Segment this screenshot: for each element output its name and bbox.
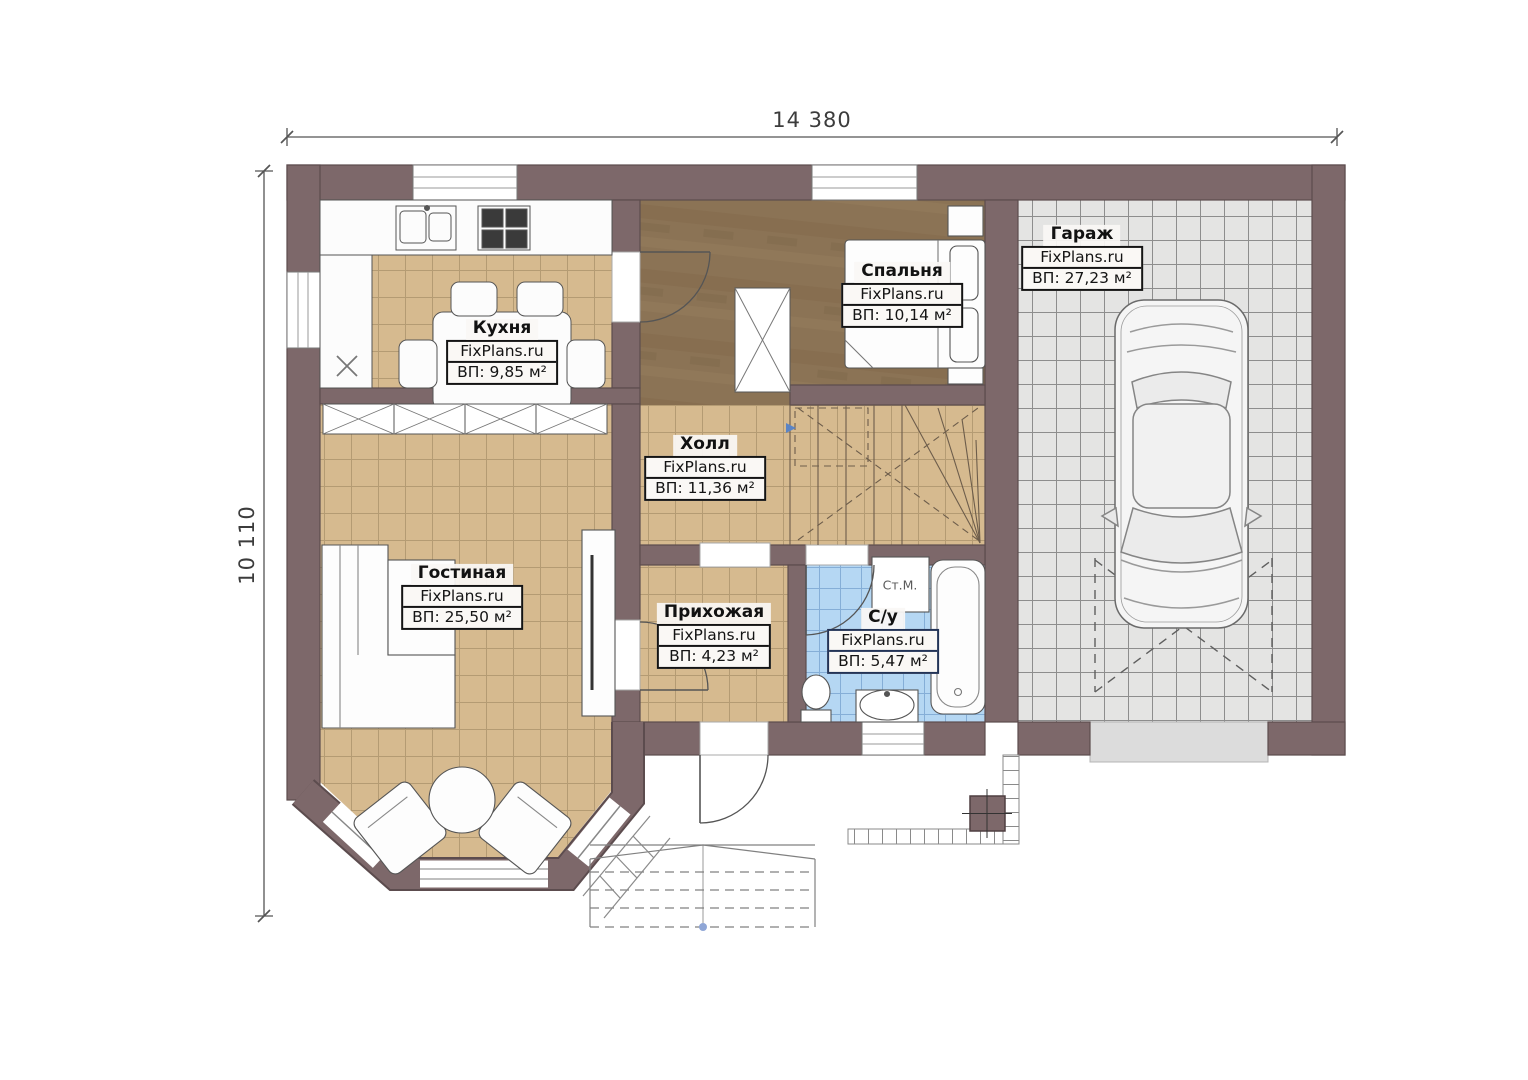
- dimension-width-label: 14 380: [772, 108, 851, 132]
- car-roof: [1133, 404, 1230, 508]
- room-label-garage: Гараж FixPlans.ru ВП: 27,23 м²: [1021, 225, 1143, 291]
- kitchen-counter-top: [320, 200, 612, 255]
- threshold-kitchen-door: [612, 252, 640, 322]
- car-windshield: [1121, 508, 1242, 563]
- room-label-bathroom: С/у FixPlans.ru ВП: 5,47 м²: [827, 608, 939, 674]
- kitchen-chair: [567, 340, 605, 388]
- room-area: ВП: 11,36 м²: [646, 479, 764, 499]
- brand-watermark: FixPlans.ru: [448, 341, 556, 363]
- wall-hall-bottom-b: [770, 545, 806, 565]
- wall-garage-left: [985, 200, 1018, 722]
- room-area: ВП: 10,14 м²: [843, 306, 961, 326]
- label-box: FixPlans.ru ВП: 9,85 м²: [446, 339, 558, 385]
- entrance-steps: [590, 845, 815, 931]
- nightstand: [948, 206, 983, 236]
- label-box: FixPlans.ru ВП: 10,14 м²: [841, 282, 963, 328]
- threshold-hall-entry: [700, 543, 770, 567]
- room-label-living: Гостиная FixPlans.ru ВП: 25,50 м²: [401, 564, 523, 630]
- room-area: ВП: 27,23 м²: [1023, 269, 1141, 289]
- room-area: ВП: 5,47 м²: [829, 652, 937, 672]
- brand-watermark: FixPlans.ru: [1023, 247, 1141, 269]
- label-box: FixPlans.ru ВП: 4,23 м²: [657, 623, 771, 669]
- kitchen-chair: [399, 340, 437, 388]
- step-marker: [699, 923, 707, 931]
- garage-apron: [1090, 722, 1268, 762]
- car: [1102, 300, 1261, 628]
- wall-garage-bottom-left: [1018, 722, 1090, 755]
- brand-watermark: FixPlans.ru: [646, 457, 764, 479]
- threshold-porch-door: [700, 722, 768, 755]
- room-area: ВП: 9,85 м²: [448, 363, 556, 383]
- room-area: ВП: 25,50 м²: [403, 608, 521, 628]
- brand-watermark: FixPlans.ru: [829, 630, 937, 652]
- threshold-living-entry: [612, 620, 640, 690]
- floor-plan-page: 14 380 10 110 Кухня FixPlans.ru ВП: 9,85…: [0, 0, 1528, 1080]
- room-label-kitchen: Кухня FixPlans.ru ВП: 9,85 м²: [446, 319, 558, 385]
- window-kitchen-left: [287, 272, 320, 348]
- wall-right: [1312, 165, 1345, 755]
- room-label-hall: Холл FixPlans.ru ВП: 11,36 м²: [644, 435, 766, 501]
- wall-living-right-b: [612, 690, 640, 722]
- window-kitchen: [413, 165, 517, 200]
- bathtub: [931, 560, 985, 714]
- wall-kitchen-right-b: [612, 322, 640, 388]
- wall-left: [287, 165, 320, 800]
- room-name: Прихожая: [657, 603, 771, 624]
- wall-bedroom-bottom: [790, 385, 985, 405]
- dimension-height-label: 10 110: [235, 505, 259, 584]
- room-label-entry: Прихожая FixPlans.ru ВП: 4,23 м²: [657, 603, 771, 669]
- wardrobe-row: [323, 404, 607, 434]
- room-name: С/у: [861, 608, 905, 629]
- kitchen-chair: [451, 282, 497, 316]
- label-box: FixPlans.ru ВП: 11,36 м²: [644, 455, 766, 501]
- window-bathroom: [862, 722, 924, 755]
- tv-stand: [582, 530, 615, 716]
- room-name: Спальня: [854, 262, 950, 283]
- window-bedroom: [812, 165, 917, 200]
- room-area: ВП: 4,23 м²: [659, 647, 769, 667]
- nightstand: [948, 368, 983, 384]
- wall-hall-bottom-a: [640, 545, 700, 565]
- wall-kitchen-right-a: [612, 200, 640, 252]
- room-name: Холл: [673, 435, 737, 456]
- room-name: Кухня: [466, 319, 539, 340]
- round-table: [429, 767, 495, 833]
- brand-watermark: FixPlans.ru: [659, 625, 769, 647]
- threshold-bathroom-door: [806, 545, 868, 565]
- room-label-bedroom: Спальня FixPlans.ru ВП: 10,14 м²: [841, 262, 963, 328]
- kitchen-chair: [517, 282, 563, 316]
- label-box: FixPlans.ru ВП: 25,50 м²: [401, 584, 523, 630]
- washing-machine-label: Ст.М.: [883, 578, 918, 593]
- label-box: FixPlans.ru ВП: 27,23 м²: [1021, 245, 1143, 291]
- label-box: FixPlans.ru ВП: 5,47 м²: [827, 628, 939, 674]
- wall-living-right-a: [612, 404, 640, 620]
- room-name: Гараж: [1044, 225, 1121, 246]
- brand-watermark: FixPlans.ru: [403, 586, 521, 608]
- room-name: Гостиная: [411, 564, 514, 585]
- closet: [735, 288, 790, 392]
- toilet: [802, 675, 830, 709]
- brand-watermark: FixPlans.ru: [843, 284, 961, 306]
- wall-garage-bottom-right: [1268, 722, 1345, 755]
- floor-plan-drawing: [0, 0, 1528, 1080]
